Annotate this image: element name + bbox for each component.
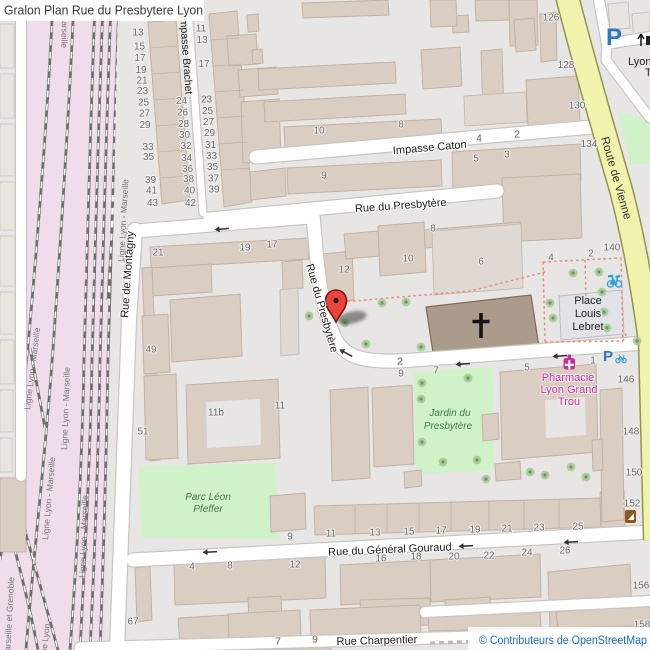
svg-text:22: 22	[483, 551, 495, 562]
svg-text:29: 29	[139, 120, 151, 131]
svg-text:11: 11	[326, 529, 337, 540]
svg-text:130: 130	[569, 101, 586, 112]
svg-text:17: 17	[266, 240, 278, 251]
svg-text:134: 134	[581, 139, 598, 150]
svg-text:148: 148	[623, 427, 640, 438]
svg-text:7: 7	[275, 637, 281, 648]
svg-text:140: 140	[604, 243, 621, 254]
svg-text:5: 5	[473, 154, 479, 165]
svg-text:5: 5	[524, 363, 530, 374]
svg-text:51: 51	[137, 427, 149, 438]
svg-text:33: 33	[206, 151, 218, 162]
svg-text:25: 25	[138, 98, 150, 109]
svg-text:25: 25	[572, 522, 584, 533]
svg-text:9: 9	[312, 635, 318, 646]
svg-text:150: 150	[626, 468, 643, 479]
svg-text:4: 4	[189, 562, 195, 573]
svg-text:13: 13	[196, 35, 208, 46]
svg-text:156: 156	[633, 581, 650, 592]
svg-text:38: 38	[183, 174, 195, 185]
svg-text:35: 35	[143, 152, 155, 163]
svg-text:19: 19	[135, 65, 147, 76]
svg-text:Gralon Plan Rue du Presbytere: Gralon Plan Rue du Presbytere Lyon	[4, 3, 203, 18]
svg-text:9: 9	[321, 171, 327, 182]
svg-text:24: 24	[176, 96, 188, 107]
svg-text:Louis: Louis	[575, 308, 602, 320]
svg-text:Pfeffer: Pfeffer	[193, 504, 223, 515]
svg-text:7: 7	[433, 366, 439, 377]
svg-text:2: 2	[397, 357, 403, 368]
svg-text:24: 24	[521, 548, 533, 559]
svg-text:41: 41	[146, 186, 158, 197]
svg-text:19: 19	[469, 525, 481, 536]
svg-text:40: 40	[184, 186, 196, 197]
svg-text:39: 39	[208, 185, 220, 196]
svg-text:37: 37	[208, 174, 220, 185]
svg-text:11: 11	[275, 401, 286, 412]
svg-text:8: 8	[430, 224, 436, 235]
svg-text:23: 23	[137, 86, 149, 97]
svg-text:9: 9	[287, 532, 293, 543]
svg-text:2: 2	[514, 130, 520, 141]
svg-text:30: 30	[179, 130, 191, 141]
svg-text:Trou: Trou	[558, 396, 580, 408]
svg-text:Place: Place	[574, 295, 602, 307]
svg-text:2: 2	[588, 249, 594, 260]
svg-text:4: 4	[548, 253, 554, 264]
svg-text:Lebret: Lebret	[572, 321, 603, 333]
svg-text:12: 12	[338, 265, 350, 276]
svg-text:42: 42	[185, 198, 197, 209]
svg-text:25: 25	[202, 106, 214, 117]
svg-text:43: 43	[147, 198, 159, 209]
svg-text:32: 32	[180, 141, 192, 152]
svg-text:146: 146	[618, 375, 635, 386]
svg-text:35: 35	[207, 162, 219, 173]
svg-text:13: 13	[132, 28, 144, 39]
svg-text:Rue Charpentier: Rue Charpentier	[336, 634, 417, 648]
svg-text:28: 28	[178, 119, 190, 130]
svg-text:27: 27	[139, 109, 151, 120]
svg-text:P: P	[603, 348, 613, 365]
svg-text:Parc Léon: Parc Léon	[185, 492, 231, 503]
svg-text:1: 1	[590, 356, 596, 367]
svg-text:39: 39	[145, 175, 157, 186]
svg-text:10: 10	[402, 254, 414, 265]
svg-text:Jardin du: Jardin du	[428, 408, 471, 419]
svg-text:© Contributeurs de OpenStreetM: © Contributeurs de OpenStreetMap	[479, 635, 647, 647]
svg-text:Pharmacie: Pharmacie	[542, 372, 595, 384]
svg-text:19: 19	[239, 243, 251, 254]
svg-text:T: T	[645, 67, 650, 79]
svg-text:8: 8	[227, 561, 233, 572]
svg-text:15: 15	[403, 527, 415, 538]
svg-text:Presbytère: Presbytère	[424, 421, 473, 432]
svg-text:49: 49	[145, 345, 157, 356]
svg-text:11: 11	[196, 24, 207, 35]
svg-text:P: P	[606, 24, 622, 51]
svg-text:152: 152	[624, 499, 641, 510]
svg-text:3: 3	[504, 150, 510, 161]
svg-text:17: 17	[134, 53, 146, 64]
svg-text:16: 16	[375, 554, 387, 565]
svg-text:27: 27	[203, 117, 215, 128]
svg-text:23: 23	[533, 523, 545, 534]
svg-text:34: 34	[181, 153, 193, 164]
svg-text:15: 15	[134, 42, 146, 53]
svg-text:17: 17	[198, 59, 210, 70]
svg-text:31: 31	[205, 140, 217, 151]
svg-text:9: 9	[398, 369, 404, 380]
svg-text:21: 21	[152, 248, 164, 259]
svg-text:18: 18	[410, 552, 422, 563]
svg-text:8: 8	[398, 120, 404, 131]
svg-text:26: 26	[177, 108, 189, 119]
svg-text:29: 29	[204, 128, 216, 139]
svg-text:12: 12	[289, 560, 301, 571]
svg-text:4: 4	[476, 134, 482, 145]
svg-text:126: 126	[543, 13, 560, 24]
svg-text:17: 17	[435, 526, 447, 537]
svg-text:26: 26	[559, 546, 571, 557]
svg-text:6: 6	[478, 257, 484, 268]
svg-text:21: 21	[501, 524, 513, 535]
svg-text:21: 21	[136, 76, 148, 87]
svg-text:20: 20	[448, 552, 460, 563]
svg-text:11b: 11b	[208, 408, 224, 419]
svg-text:128: 128	[558, 60, 575, 71]
svg-text:67: 67	[127, 617, 139, 628]
svg-text:13: 13	[369, 528, 381, 539]
svg-text:23: 23	[201, 95, 213, 106]
svg-text:Lyon Grand: Lyon Grand	[540, 384, 597, 396]
svg-text:10: 10	[313, 126, 325, 137]
